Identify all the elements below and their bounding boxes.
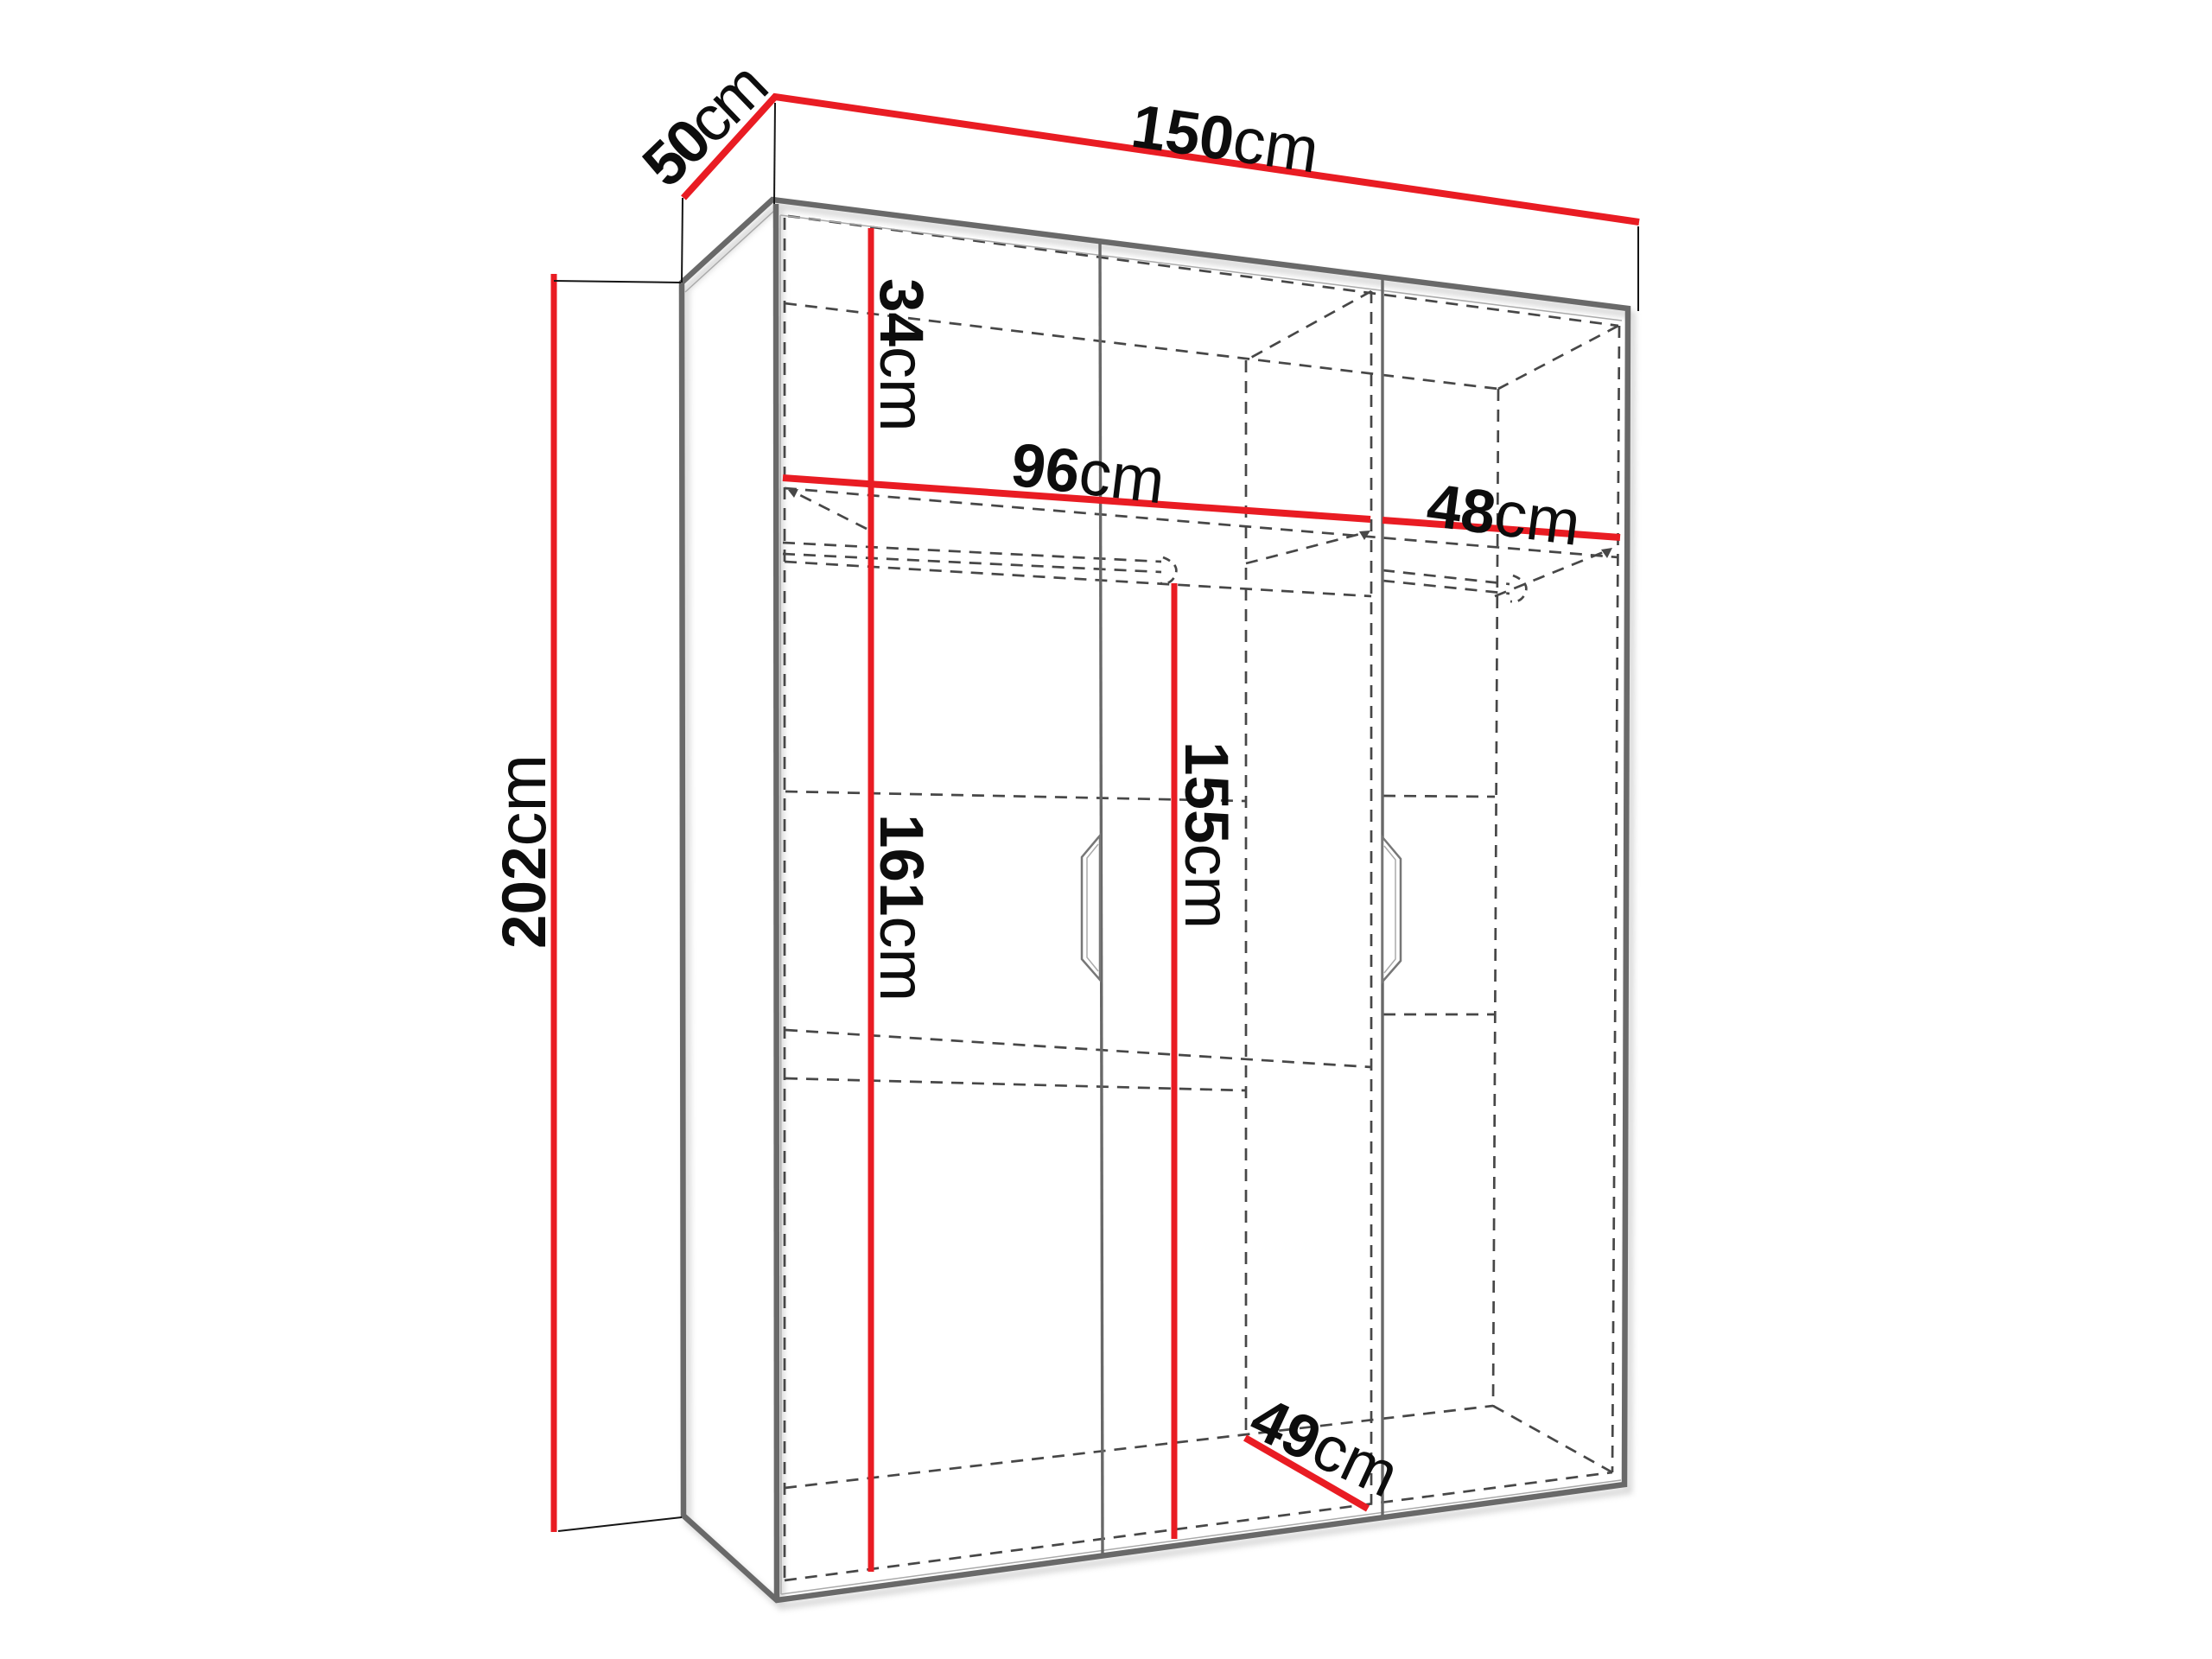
svg-text:34cm: 34cm bbox=[867, 278, 938, 432]
svg-text:202cm: 202cm bbox=[483, 754, 560, 949]
svg-text:161cm: 161cm bbox=[867, 814, 938, 1001]
svg-text:155cm: 155cm bbox=[1172, 741, 1243, 929]
